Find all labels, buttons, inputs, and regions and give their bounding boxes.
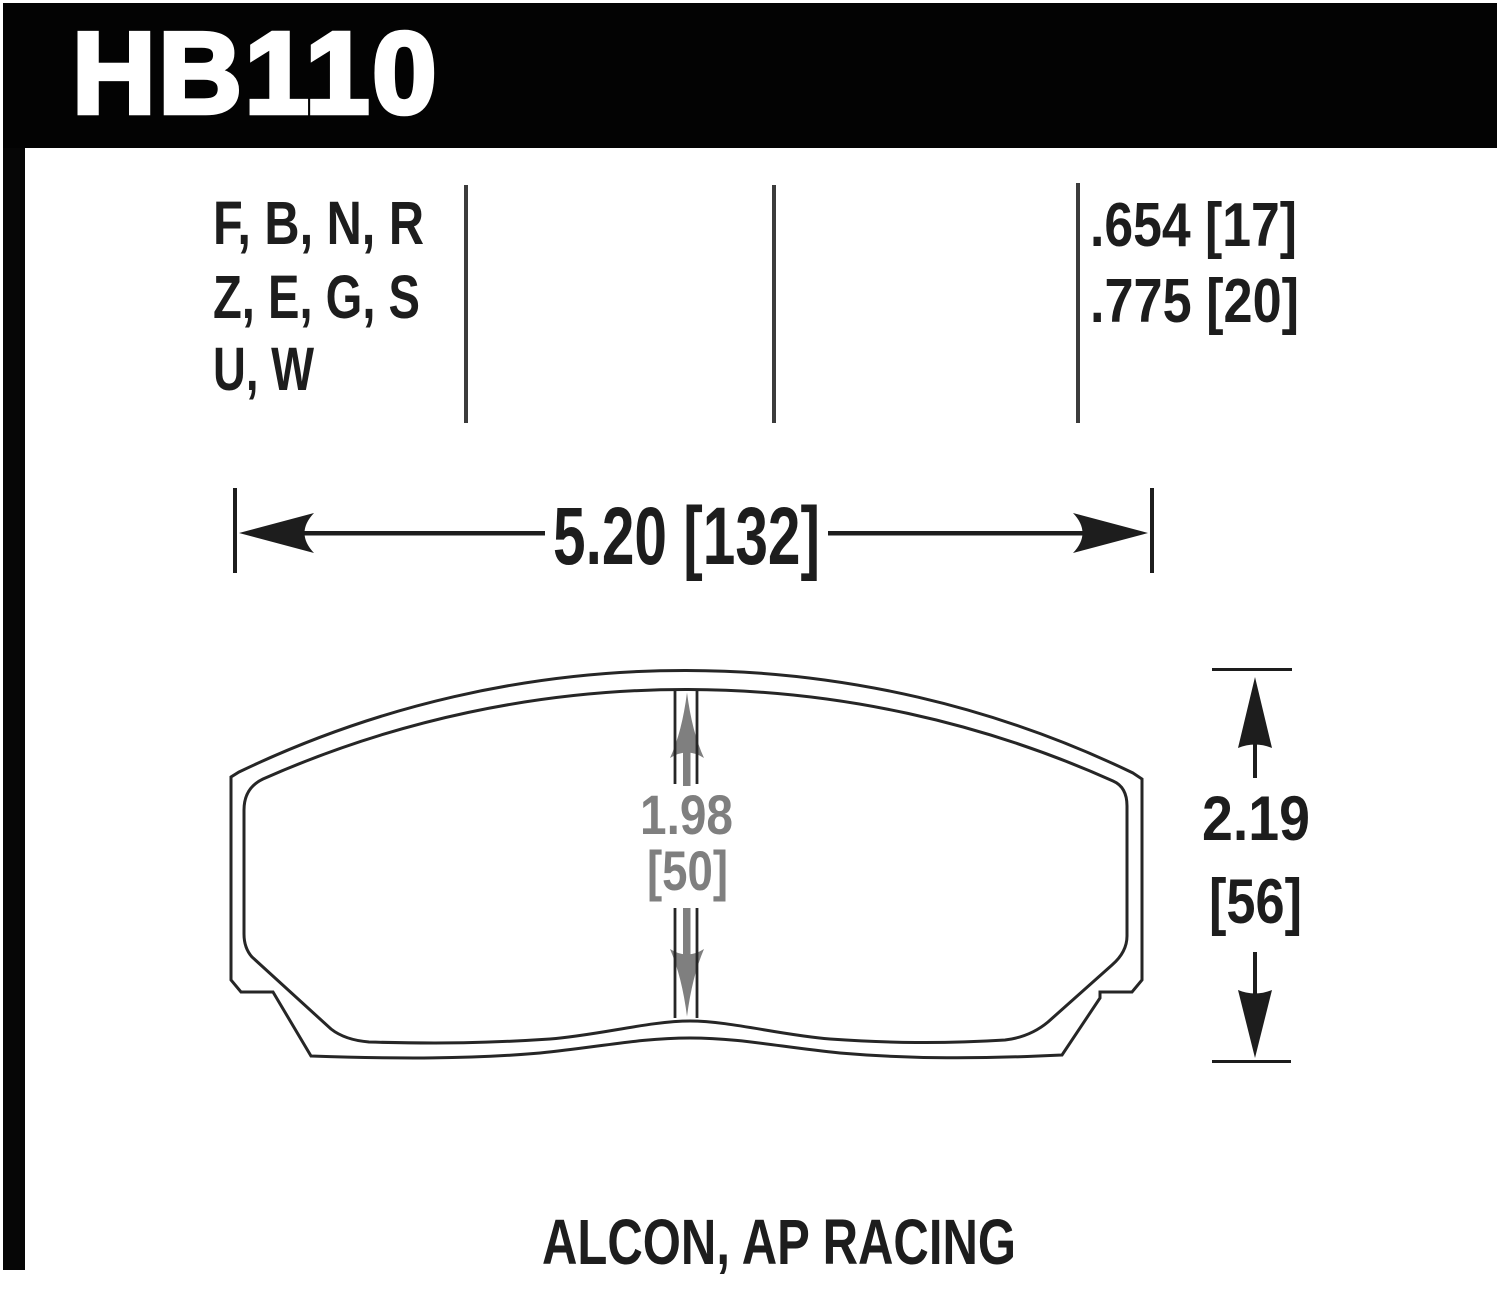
svg-text:.654 [17]: .654 [17] bbox=[1090, 191, 1297, 260]
svg-text:.775 [20]: .775 [20] bbox=[1090, 267, 1299, 336]
svg-text:Z, E, G, S: Z, E, G, S bbox=[213, 263, 420, 331]
svg-text:[50]: [50] bbox=[647, 839, 728, 902]
svg-text:5.20 [132]: 5.20 [132] bbox=[553, 491, 820, 582]
svg-text:2.19: 2.19 bbox=[1202, 784, 1310, 854]
svg-text:1.98: 1.98 bbox=[640, 783, 733, 846]
svg-text:[56]: [56] bbox=[1209, 867, 1302, 937]
svg-text:U, W: U, W bbox=[213, 335, 314, 403]
svg-text:ALCON, AP RACING: ALCON, AP RACING bbox=[542, 1206, 1016, 1278]
svg-text:HB110: HB110 bbox=[72, 8, 439, 138]
svg-text:F, B, N, R: F, B, N, R bbox=[213, 189, 424, 257]
